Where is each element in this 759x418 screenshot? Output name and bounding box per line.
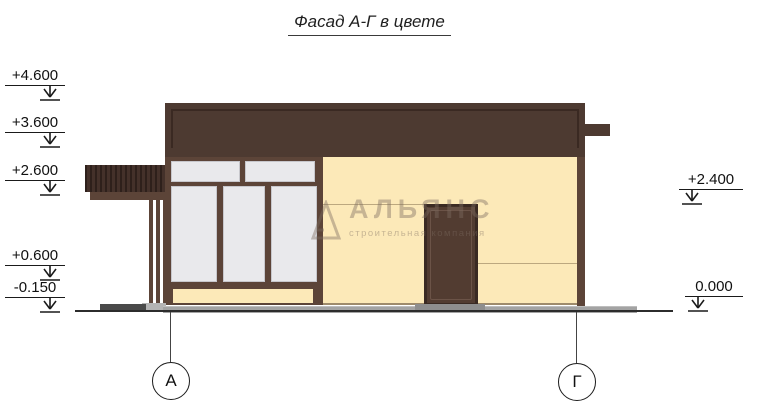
elevation-value: +4.600 — [5, 67, 65, 86]
elevation-value: 0.000 — [685, 278, 743, 297]
elevation-arrow-icon — [37, 180, 63, 199]
roof-band — [165, 103, 585, 157]
elevation-value: +3.600 — [5, 114, 65, 133]
roof-inset-outline — [171, 109, 579, 148]
elevation-value: +2.600 — [5, 162, 65, 181]
axis-bubble-a: А — [152, 362, 190, 400]
wall-seam-line — [323, 204, 424, 205]
axis-bubble-g: Г — [558, 363, 596, 401]
awning-canopy — [85, 165, 165, 192]
entrance-door — [424, 204, 478, 306]
ground-line — [75, 310, 673, 312]
storefront-glazing — [165, 157, 323, 305]
elevation-mark-right-0000: 0.000 — [685, 278, 743, 297]
elevation-mark-left-minus0150: -0.150 — [5, 279, 65, 298]
transom-window — [171, 161, 240, 182]
axis-line-a — [170, 312, 171, 362]
storefront-window — [171, 186, 217, 282]
elevation-mark-left-4600: +4.600 — [5, 67, 65, 86]
elevation-arrow-icon — [37, 297, 63, 316]
elevation-arrow-icon — [685, 296, 711, 315]
corner-pilaster — [577, 157, 585, 307]
door-panel-outline — [430, 210, 472, 300]
drawing-title: Фасад А-Г в цвете — [247, 12, 492, 36]
elevation-mark-left-3600: +3.600 — [5, 114, 65, 133]
axis-label: А — [165, 371, 176, 391]
awning-post — [149, 200, 153, 305]
awning-post — [156, 200, 160, 305]
elevation-arrow-icon — [37, 132, 63, 151]
elevation-mark-left-2600: +2.600 — [5, 162, 65, 181]
axis-line-g — [576, 312, 577, 363]
elevation-value: +0.600 — [5, 247, 65, 266]
spandrel-panel — [173, 289, 313, 303]
elevation-mark-left-0600: +0.600 — [5, 247, 65, 266]
axis-label: Г — [572, 372, 581, 392]
elevation-value: -0.150 — [5, 279, 65, 298]
facade-drawing-sheet: Фасад А-Г в цвете +4.600 +3.600 +2.600 +… — [0, 0, 759, 418]
wall-seam-line — [478, 263, 577, 264]
elevation-value: +2.400 — [679, 171, 743, 190]
storefront-window — [271, 186, 317, 282]
awning-fascia — [90, 192, 167, 200]
elevation-arrow-icon — [37, 85, 63, 104]
elevation-mark-right-2400: +2.400 — [679, 171, 743, 190]
storefront-window — [223, 186, 265, 282]
roof-scupper — [585, 124, 610, 136]
transom-window — [245, 161, 315, 182]
elevation-arrow-icon — [679, 189, 705, 208]
drawing-title-text: Фасад А-Г в цвете — [288, 12, 451, 36]
